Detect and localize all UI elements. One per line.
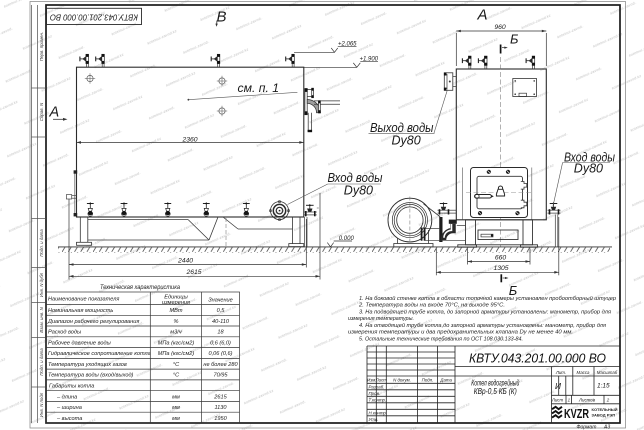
svg-text:Масштаб: Масштаб xyxy=(597,370,618,375)
svg-text:0,5: 0,5 xyxy=(217,308,226,314)
svg-text:Вход воды: Вход воды xyxy=(328,171,383,185)
svg-text:2. Температура воды на входе: 2. Температура воды на входе 70°С, на вы… xyxy=(358,303,505,309)
svg-text:В: В xyxy=(217,8,227,25)
svg-text:660: 660 xyxy=(495,254,507,261)
svg-text:1305: 1305 xyxy=(493,265,508,272)
svg-text:4. На отводящей трубе котла,д: 4. На отводящей трубе котла,до запорной … xyxy=(359,322,606,329)
svg-text:Температура уходящих газов: Температура уходящих газов xyxy=(48,362,127,368)
svg-text:Подп.: Подп. xyxy=(422,378,434,383)
svg-text:Утв.: Утв. xyxy=(369,417,379,422)
svg-text:Дата: Дата xyxy=(439,378,452,383)
svg-text:Лист: Лист xyxy=(375,378,388,383)
svg-text:°С: °С xyxy=(173,362,180,368)
svg-text:40-110: 40-110 xyxy=(212,319,230,325)
svg-text:Н.контр.: Н.контр. xyxy=(369,411,388,416)
svg-text:2: 2 xyxy=(606,398,610,403)
svg-text:мм: мм xyxy=(172,416,180,422)
svg-text:960: 960 xyxy=(494,24,506,31)
svg-text:МПа (кгс/см2): МПа (кгс/см2) xyxy=(158,351,195,357)
svg-text:– ширина: – ширина xyxy=(56,405,82,411)
svg-text:Dy80: Dy80 xyxy=(574,161,603,175)
svg-text:мм: мм xyxy=(172,405,180,411)
svg-text:2440: 2440 xyxy=(177,257,193,264)
svg-text:2615: 2615 xyxy=(185,269,201,276)
svg-text:м3/ч: м3/ч xyxy=(170,330,181,336)
svg-text:%: % xyxy=(174,319,179,325)
svg-text:Перв. примен.: Перв. примен. xyxy=(39,32,44,61)
svg-text:Dy80: Dy80 xyxy=(344,184,373,198)
svg-text:Листов: Листов xyxy=(578,398,596,403)
svg-text:измерения: измерения xyxy=(162,300,190,306)
svg-text:Значение: Значение xyxy=(208,298,233,304)
svg-text:2615: 2615 xyxy=(213,394,227,400)
svg-text:Подп. и дата: Подп. и дата xyxy=(39,229,44,257)
svg-text:Техническая характеристика: Техническая характеристика xyxy=(100,284,180,291)
svg-text:мм: мм xyxy=(172,394,180,400)
svg-text:+2.065: +2.065 xyxy=(338,41,357,47)
svg-text:N докум.: N докум. xyxy=(393,378,411,383)
svg-text:А: А xyxy=(477,7,488,24)
svg-text:Б: Б xyxy=(510,32,519,47)
svg-text:Разраб.: Разраб. xyxy=(369,385,385,390)
svg-text:Рабочее давление воды: Рабочее давление воды xyxy=(48,340,111,346)
svg-text:0,6 (6,0): 0,6 (6,0) xyxy=(210,340,231,346)
svg-text:ЗАВОД РЭП: ЗАВОД РЭП xyxy=(592,412,616,417)
svg-text:Справ. N: Справ. N xyxy=(39,102,44,121)
svg-text:Гидравлическое сопротивление к: Гидравлическое сопротивление котла xyxy=(48,351,151,357)
svg-text:см. п. 1: см. п. 1 xyxy=(238,81,280,95)
svg-text:Температура воды (вход/выход): Температура воды (вход/выход) xyxy=(48,373,134,379)
svg-text:МПа (кгс/см2): МПа (кгс/см2) xyxy=(158,340,195,346)
svg-text:– длина: – длина xyxy=(56,394,77,400)
svg-text:1:15: 1:15 xyxy=(597,383,610,390)
svg-text:Габариты котла: Габариты котла xyxy=(49,384,94,390)
svg-text:измерения температуры и два пр: измерения температуры и два предохраните… xyxy=(348,330,573,336)
svg-text:18: 18 xyxy=(217,330,224,336)
svg-text:Расход воды: Расход воды xyxy=(48,330,81,336)
svg-text:Наименование показателя: Наименование показателя xyxy=(48,297,119,303)
svg-text:+1.900: +1.900 xyxy=(360,56,379,62)
svg-text:КВТУ.043.201.00.000 ВО: КВТУ.043.201.00.000 ВО xyxy=(50,12,138,21)
svg-text:Масса: Масса xyxy=(577,370,591,375)
svg-text:1. На боковой стенке котла в: 1. На боковой стенке котла в области топ… xyxy=(359,295,616,302)
svg-text:Инв. N подл: Инв. N подл xyxy=(39,392,44,417)
svg-text:Dy80: Dy80 xyxy=(392,134,421,148)
svg-text:Лит.: Лит. xyxy=(555,370,566,375)
svg-text:Лист: Лист xyxy=(551,398,564,403)
svg-text:70/95: 70/95 xyxy=(214,373,229,379)
svg-text:измерения температуры.: измерения температуры. xyxy=(348,316,414,322)
svg-text:2360: 2360 xyxy=(181,136,197,143)
svg-text:– высота: – высота xyxy=(56,416,82,422)
svg-text:Номинальная мощность: Номинальная мощность xyxy=(48,308,113,314)
svg-text:А3: А3 xyxy=(603,424,610,430)
svg-text:1130: 1130 xyxy=(214,405,227,411)
svg-text:КОТЕЛЬНЫЙ: КОТЕЛЬНЫЙ xyxy=(592,407,618,412)
svg-text:Пров.: Пров. xyxy=(369,391,381,396)
svg-text:Т.контр.: Т.контр. xyxy=(369,398,387,403)
svg-text:Диапазон рабочего регулировани: Диапазон рабочего регулирования xyxy=(47,319,139,325)
svg-text:°С: °С xyxy=(173,373,180,379)
svg-text:Подп. и дата: Подп. и дата xyxy=(39,348,44,376)
svg-text:Взам. инв. N: Взам. инв. N xyxy=(39,306,44,332)
svg-text:KVZR: KVZR xyxy=(564,407,589,421)
svg-text:КВТУ.043.201.00.000 ВО: КВТУ.043.201.00.000 ВО xyxy=(469,351,606,366)
svg-text:0,06 (0,6): 0,06 (0,6) xyxy=(209,351,233,357)
svg-text:А: А xyxy=(49,105,60,121)
svg-text:0.000: 0.000 xyxy=(339,236,355,242)
svg-text:И: И xyxy=(555,381,561,391)
svg-text:Инв. N дубл: Инв. N дубл xyxy=(39,272,44,297)
svg-text:МВт: МВт xyxy=(169,308,182,314)
svg-text:1950: 1950 xyxy=(214,416,227,422)
svg-text:КВр-0,5 КБ (К): КВр-0,5 КБ (К) xyxy=(474,386,517,396)
svg-text:не более 280: не более 280 xyxy=(203,362,238,368)
svg-text:Формат: Формат xyxy=(577,424,597,430)
svg-text:5. Остальные технические треб: 5. Остальные технические требования по О… xyxy=(359,337,523,343)
svg-text:3. На подводящей трубе котла,: 3. На подводящей трубе котла, до запорно… xyxy=(359,308,611,315)
